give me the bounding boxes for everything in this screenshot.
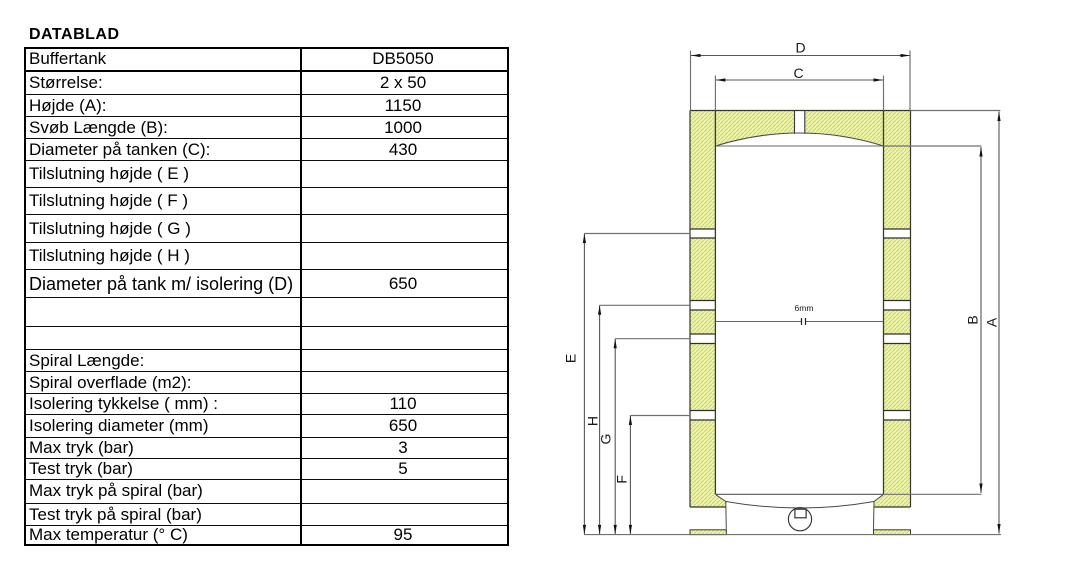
svg-text:B: B: [965, 315, 981, 324]
svg-text:D: D: [795, 40, 805, 56]
svg-text:C: C: [794, 65, 804, 81]
svg-text:G: G: [598, 434, 614, 445]
svg-text:A: A: [984, 317, 1000, 327]
svg-text:E: E: [563, 354, 579, 363]
svg-text:6mm: 6mm: [795, 303, 814, 313]
svg-text:F: F: [613, 475, 629, 484]
svg-text:H: H: [585, 416, 601, 426]
